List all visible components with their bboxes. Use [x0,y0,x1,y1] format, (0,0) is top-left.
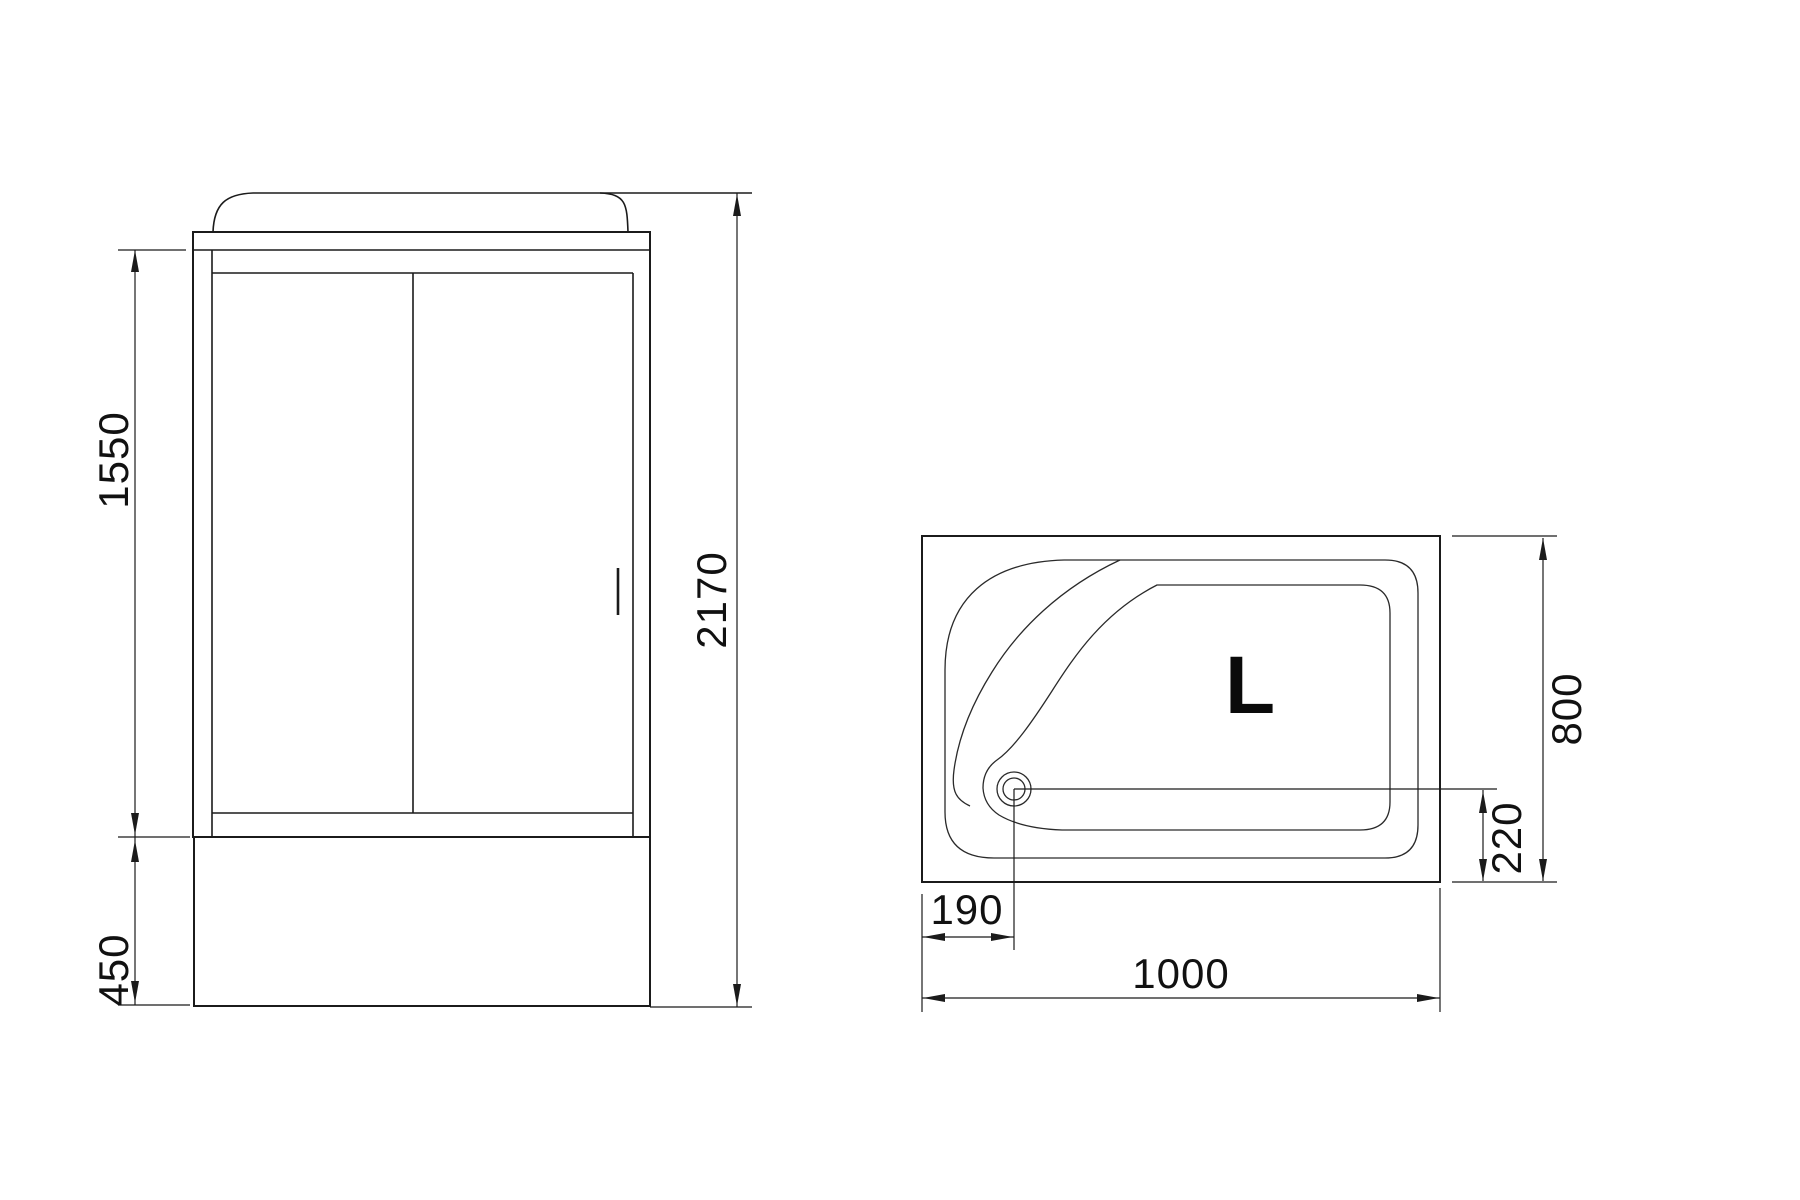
dim-label-drain-front: 220 [1483,801,1530,874]
arrowhead-icon [733,194,741,216]
arrowhead-icon [923,933,945,941]
arrowhead-icon [131,250,139,272]
front-right-dimension: 2170 [650,193,752,1007]
dim-label-depth: 800 [1543,672,1590,745]
dim-label-door-height: 1550 [90,411,137,508]
front-left-dimensions: 1550 450 [90,250,190,1007]
drawing-canvas: { "drawing": { "front_view": { "height_d… [0,0,1800,1200]
seat-curve [953,560,1120,806]
top-view: L 800 220 190 [922,536,1590,1012]
technical-drawing: 1550 450 2170 L [0,0,1800,1200]
top-view-drain-front-dimension: 220 [1479,790,1530,881]
arrowhead-icon [131,840,139,862]
arrowhead-icon [1539,859,1547,881]
base-tray-front [194,837,650,1006]
arrowhead-icon [733,984,741,1006]
tray-rim-outer [945,560,1418,858]
arrowhead-icon [923,994,945,1002]
cabin-frame-outline [193,232,650,837]
dim-label-total-height: 2170 [688,551,735,648]
front-view: 1550 450 2170 [90,193,752,1007]
dim-label-base-height: 450 [90,933,137,1006]
dim-label-drain-side: 190 [930,886,1003,933]
orientation-label: L [1225,640,1275,731]
top-view-drain-side-dimension: 190 [922,886,1014,1012]
arrowhead-icon [991,933,1013,941]
dome-left-arc [213,193,253,232]
arrowhead-icon [1417,994,1439,1002]
arrowhead-icon [1539,538,1547,560]
arrowhead-icon [131,813,139,835]
dome-right-arc [600,193,628,232]
tray-basin-edge [983,585,1390,830]
dim-label-width: 1000 [1132,950,1229,997]
